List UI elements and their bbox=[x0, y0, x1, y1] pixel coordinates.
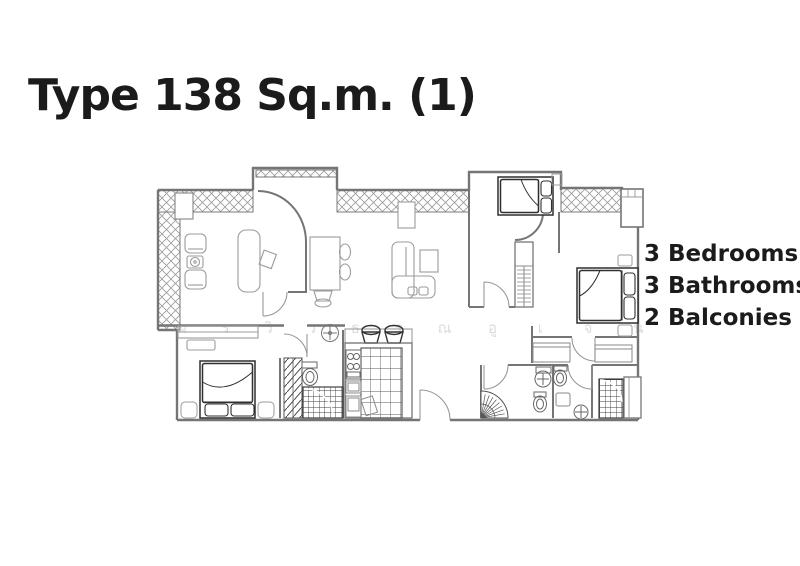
feature-balconies: 2 Balconies bbox=[644, 302, 800, 334]
washbasin bbox=[535, 367, 551, 387]
bathroom1-door bbox=[284, 334, 307, 357]
nightstand bbox=[618, 325, 632, 336]
shower bbox=[303, 387, 343, 418]
lamp bbox=[191, 258, 200, 267]
bed bbox=[498, 177, 553, 215]
feature-list: 3 Bedrooms 3 Bathrooms 2 Balconies bbox=[644, 238, 800, 334]
bedroom2-door bbox=[484, 282, 509, 307]
bed bbox=[200, 361, 255, 418]
washbasin bbox=[322, 325, 339, 342]
dining-chair bbox=[340, 244, 351, 260]
desk bbox=[238, 230, 260, 292]
kitchen bbox=[345, 326, 412, 419]
floor-plan-page: Type 138 Sq.m. (1) ผ ร วิ ว ธ ร ณ อู เ จ… bbox=[0, 0, 800, 566]
dining-table bbox=[310, 237, 340, 290]
bar-stool bbox=[362, 326, 380, 344]
nightstand bbox=[258, 402, 274, 418]
feature-bathrooms: 3 Bathrooms bbox=[644, 270, 800, 302]
dining-furniture bbox=[310, 237, 351, 307]
bathroom3 bbox=[554, 366, 642, 419]
nightstand bbox=[181, 402, 197, 418]
bathroom1 bbox=[284, 325, 343, 419]
master-bedroom bbox=[533, 255, 638, 362]
desk-chair bbox=[259, 250, 276, 269]
armchair bbox=[185, 234, 206, 253]
counter-tiles bbox=[361, 348, 402, 418]
sliding-closet bbox=[284, 358, 302, 418]
sofa bbox=[392, 242, 414, 298]
cabinet bbox=[178, 326, 258, 350]
entrance-door bbox=[420, 390, 450, 420]
bar-stool bbox=[385, 326, 403, 344]
corner-shower bbox=[481, 391, 508, 418]
master-bedroom-door bbox=[572, 338, 595, 361]
toilet bbox=[534, 392, 547, 412]
balcony-right bbox=[561, 188, 623, 212]
hall-closet bbox=[533, 343, 632, 362]
wardrobe-top-right bbox=[621, 189, 643, 227]
living-furniture bbox=[392, 202, 438, 298]
wardrobe-bottom-right bbox=[624, 377, 641, 418]
side-table bbox=[556, 393, 570, 406]
toilet bbox=[554, 366, 568, 386]
bathroom2 bbox=[481, 367, 551, 418]
stove bbox=[346, 350, 361, 379]
bedroom2 bbox=[498, 174, 562, 307]
balcony-column bbox=[175, 193, 193, 219]
feature-bedrooms: 3 Bedrooms bbox=[644, 238, 800, 270]
tv-cabinet bbox=[398, 202, 415, 228]
armchair bbox=[185, 270, 206, 289]
washbasin bbox=[574, 405, 588, 419]
den-furniture bbox=[185, 230, 276, 292]
wardrobe-hanger-rack bbox=[515, 242, 533, 307]
bathroom2-door bbox=[484, 365, 508, 389]
master-shower bbox=[599, 379, 623, 418]
toilet bbox=[302, 362, 318, 386]
nightstand bbox=[618, 255, 632, 266]
bedroom3 bbox=[178, 326, 274, 418]
dining-chair bbox=[340, 264, 351, 280]
bed bbox=[577, 268, 638, 323]
den-door bbox=[263, 292, 287, 316]
bathroom3-door bbox=[568, 365, 592, 389]
coffee-table bbox=[420, 250, 438, 272]
